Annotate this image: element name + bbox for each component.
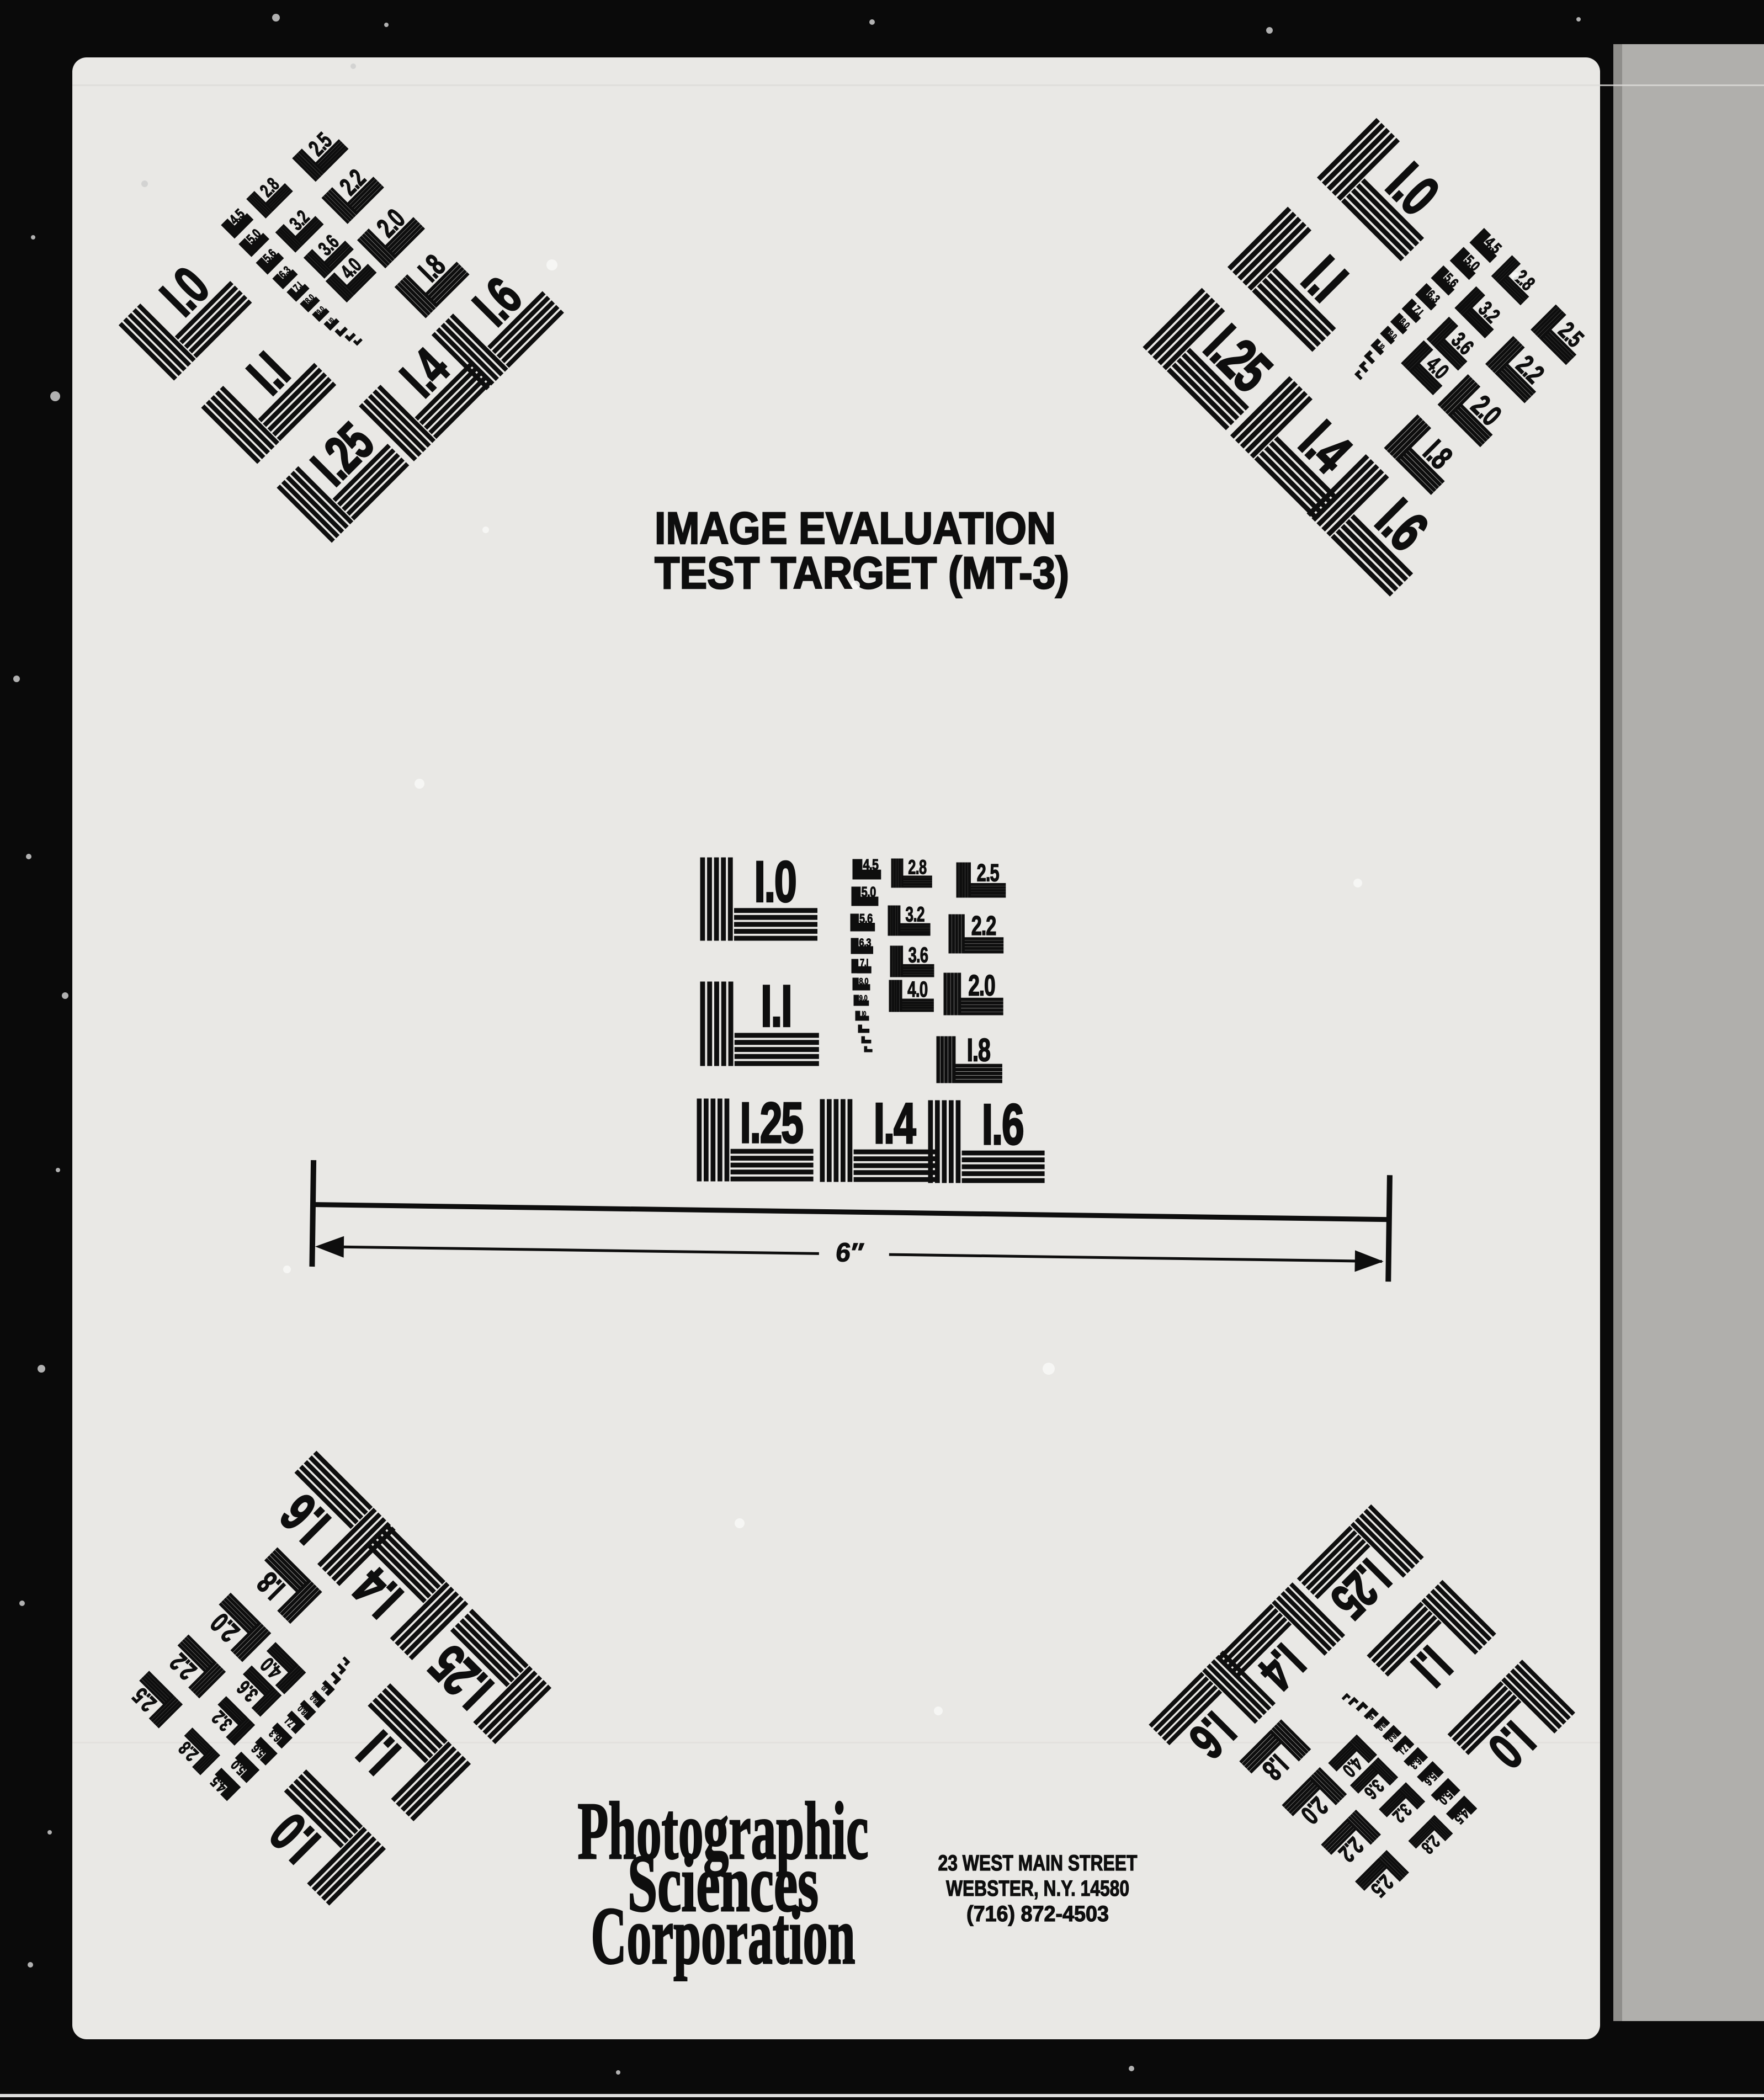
svg-text:WEBSTER, N.Y. 14580: WEBSTER, N.Y. 14580 — [946, 1876, 1129, 1901]
svg-text:23 WEST MAIN STREET: 23 WEST MAIN STREET — [938, 1851, 1138, 1875]
svg-text:(716) 872-4503: (716) 872-4503 — [966, 1902, 1109, 1926]
svg-text:IMAGE EVALUATION: IMAGE EVALUATION — [655, 503, 1056, 554]
svg-text:6″: 6″ — [834, 1237, 865, 1267]
svg-text:TEST TARGET (MT-3): TEST TARGET (MT-3) — [655, 548, 1069, 598]
svg-text:Corporation: Corporation — [591, 1891, 856, 1981]
